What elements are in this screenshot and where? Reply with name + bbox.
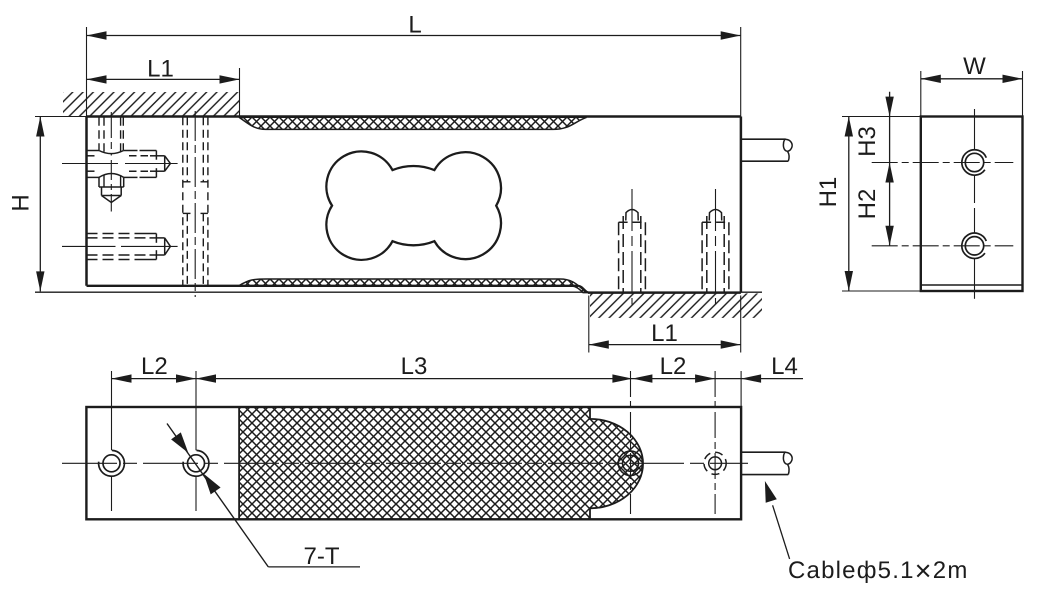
svg-text:7-T: 7-T xyxy=(304,543,340,570)
svg-text:H1: H1 xyxy=(815,177,842,208)
svg-text:L: L xyxy=(408,12,421,39)
svg-text:L4: L4 xyxy=(771,353,798,380)
svg-text:L2: L2 xyxy=(660,353,687,380)
svg-text:L1: L1 xyxy=(651,320,678,347)
svg-text:L2: L2 xyxy=(141,353,168,380)
svg-text:L3: L3 xyxy=(401,353,428,380)
svg-text:Cableф5.1×2m: Cableф5.1×2m xyxy=(788,556,969,588)
svg-text:H3: H3 xyxy=(854,126,881,157)
svg-text:L1: L1 xyxy=(147,56,174,83)
svg-text:H: H xyxy=(8,194,35,211)
svg-text:W: W xyxy=(963,53,986,80)
svg-text:H2: H2 xyxy=(854,189,881,220)
